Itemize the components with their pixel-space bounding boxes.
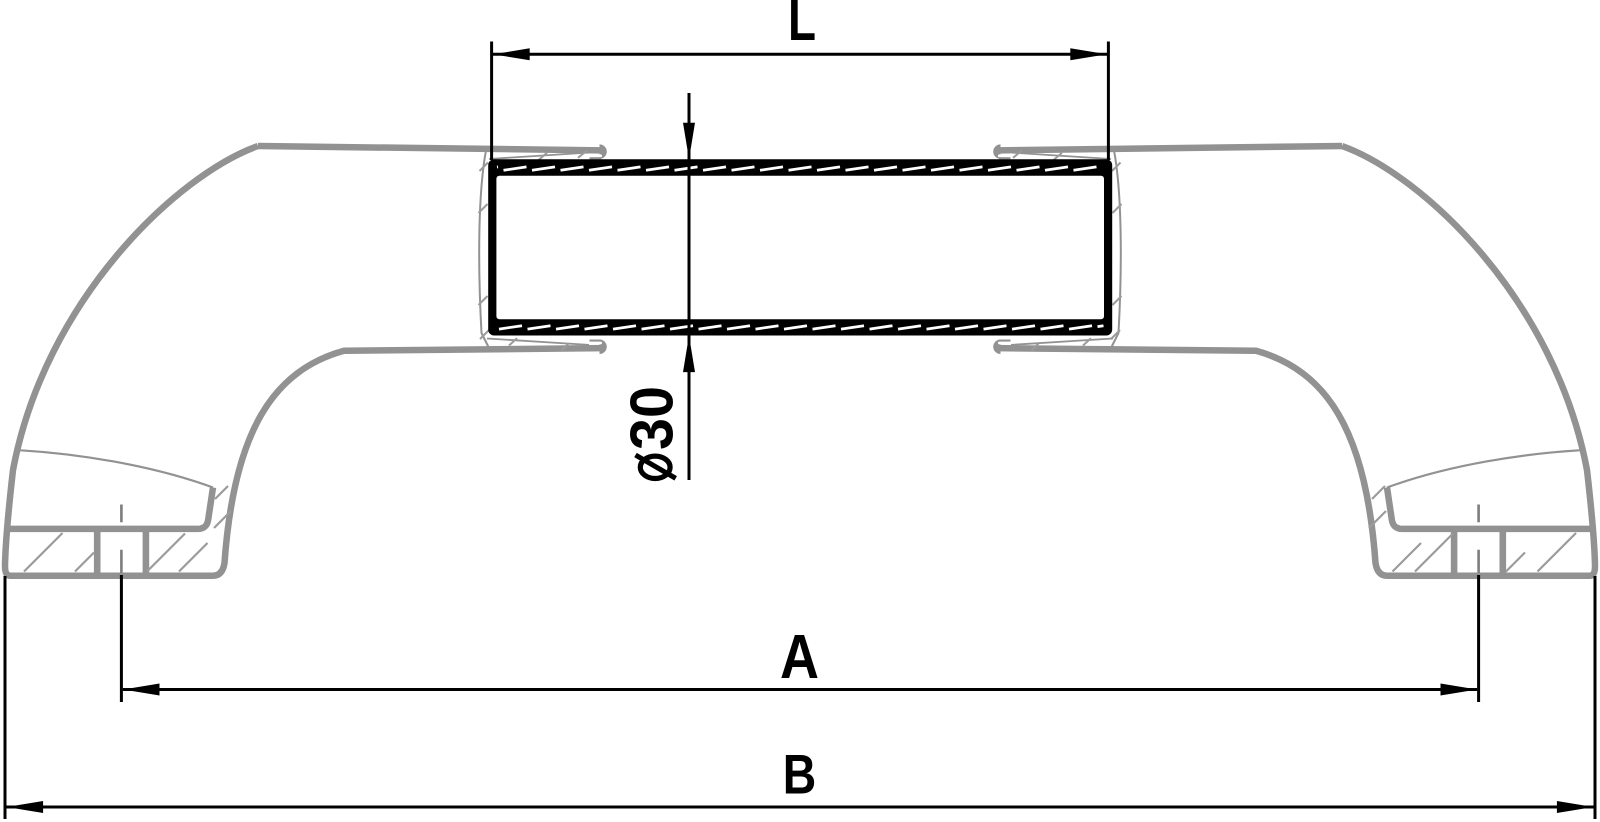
svg-text:30: 30 — [619, 386, 686, 450]
svg-text:B: B — [783, 743, 817, 806]
svg-text:L: L — [788, 0, 816, 53]
svg-text:A: A — [780, 623, 819, 692]
